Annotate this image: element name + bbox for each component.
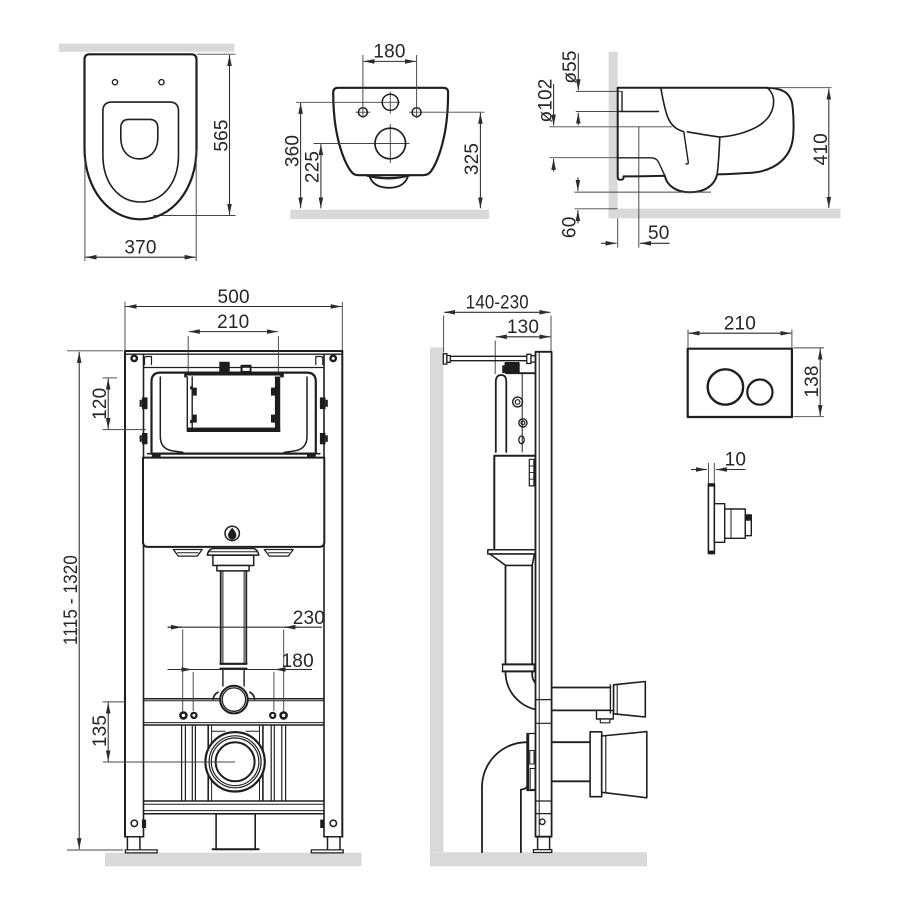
svg-text:500: 500: [217, 287, 249, 308]
svg-text:60: 60: [559, 217, 580, 239]
svg-text:180: 180: [282, 651, 314, 672]
svg-text:ø55: ø55: [560, 50, 581, 83]
svg-text:50: 50: [648, 223, 670, 244]
svg-text:1115 - 1320: 1115 - 1320: [61, 555, 82, 645]
svg-text:140-230: 140-230: [466, 293, 529, 314]
svg-text:ø102: ø102: [536, 78, 557, 122]
svg-text:210: 210: [217, 312, 249, 333]
svg-text:225: 225: [303, 151, 324, 183]
svg-text:360: 360: [282, 135, 303, 167]
svg-text:120: 120: [90, 388, 111, 420]
svg-text:410: 410: [811, 133, 832, 165]
svg-text:180: 180: [373, 42, 405, 63]
svg-text:370: 370: [124, 237, 156, 258]
svg-text:325: 325: [462, 143, 483, 175]
svg-text:565: 565: [211, 119, 232, 151]
svg-text:230: 230: [293, 608, 325, 629]
svg-text:138: 138: [802, 365, 823, 397]
svg-text:135: 135: [90, 715, 111, 747]
svg-text:130: 130: [507, 317, 539, 338]
svg-text:210: 210: [724, 314, 756, 335]
svg-text:10: 10: [725, 449, 747, 470]
